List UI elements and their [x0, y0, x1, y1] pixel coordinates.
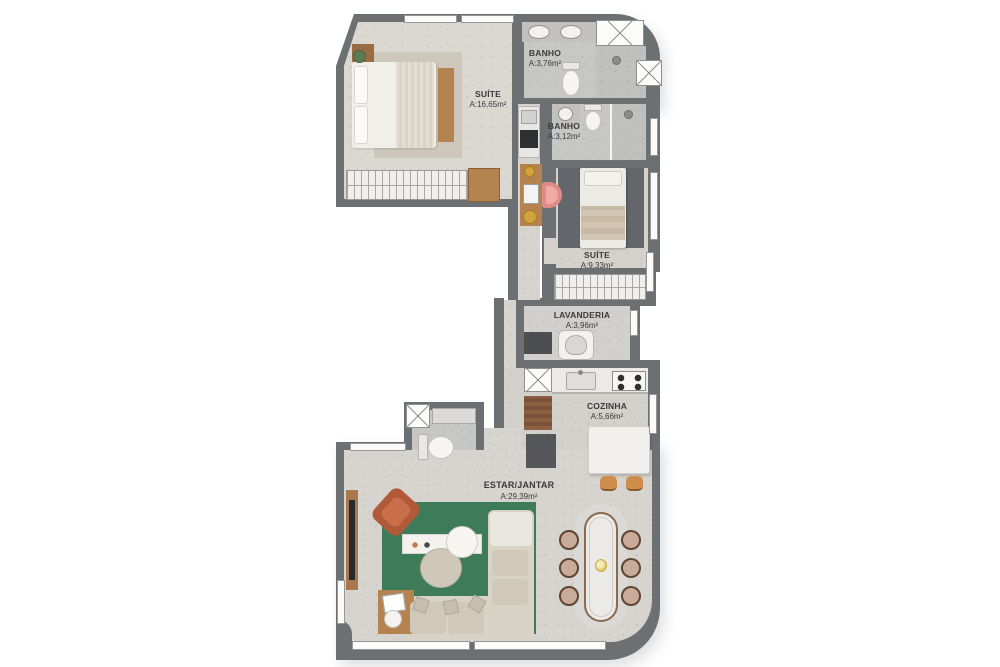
powder-toilet-tank — [418, 434, 428, 460]
wall-kitchen-north — [514, 360, 648, 368]
sofa-pillow-2 — [443, 599, 460, 616]
dining-chair-2 — [559, 558, 579, 578]
kitchen-stove — [612, 371, 646, 391]
dining-chair-5 — [621, 558, 641, 578]
kitchen-shaft — [524, 368, 552, 392]
side-table-lamp — [384, 610, 402, 628]
room-area: A:5,66m² — [569, 412, 645, 422]
floor-corridor-mouth — [484, 428, 520, 452]
kitchen-stool-right — [626, 476, 643, 491]
window-living-west — [337, 580, 345, 624]
floor-corridor-lower — [504, 300, 516, 368]
dining-centerpiece — [595, 559, 607, 572]
wall-corridor-upper — [508, 200, 518, 312]
hall-stool — [523, 210, 537, 224]
floorplan-canvas: BANHO A:3,76m² SUÍTE A:16,65m² BANHO A:3… — [0, 0, 1000, 667]
suite1-plant — [353, 50, 366, 63]
powder-vanity — [432, 408, 476, 424]
room-name: ESTAR/JANTAR — [476, 480, 562, 492]
bath1-sink-left — [528, 25, 550, 39]
room-label-lavanderia: LAVANDERIA A:3,96m² — [536, 310, 628, 331]
suite1-door-wood — [468, 168, 500, 202]
hall-laptop — [523, 184, 539, 204]
room-area: A:3,96m² — [536, 321, 628, 331]
laundry-cabinet-dark — [524, 332, 552, 354]
dining-chair-4 — [621, 530, 641, 550]
room-name: BANHO — [507, 48, 583, 59]
living-round-table — [446, 526, 478, 558]
suite2-blanket — [581, 206, 625, 240]
room-name: COZINHA — [569, 401, 645, 412]
room-label-suite1: SUÍTE A:16,65m² — [450, 89, 526, 110]
suite1-wardrobe — [346, 170, 468, 200]
suite1-pillow-bottom — [354, 106, 368, 144]
window-suite1-top-right — [461, 15, 514, 23]
suite2-pillow — [584, 171, 622, 186]
suite1-pillow-top — [354, 66, 368, 104]
bath2-shower-partition — [610, 104, 612, 160]
kitchen-island — [588, 426, 650, 474]
window-bath2-east — [650, 118, 658, 156]
window-kitchen-east — [649, 394, 657, 434]
dining-chair-1 — [559, 530, 579, 550]
window-laundry-east — [630, 310, 638, 336]
bath2-sink — [558, 107, 573, 121]
wall-corner-bulge — [336, 620, 352, 660]
bath1-sink-right — [560, 25, 582, 39]
room-label-banho1: BANHO A:3,76m² — [507, 48, 583, 69]
room-area: A:9,33m² — [559, 261, 635, 271]
room-area: A:3,76m² — [507, 59, 583, 69]
hall-desk-lamp — [524, 166, 535, 177]
window-living-south-left — [352, 641, 470, 650]
window-suite1-top-left — [404, 15, 457, 23]
kitchen-faucet — [578, 370, 583, 375]
window-suite2-east — [650, 172, 658, 240]
bath1-shower-glass — [596, 20, 644, 46]
sofa-cushion-2 — [492, 579, 528, 605]
kitchen-pantry-wood — [524, 396, 552, 430]
tv-screen — [349, 500, 355, 580]
sofa-cushion-1 — [492, 550, 528, 576]
room-label-banho2: BANHO A:3,12m² — [526, 121, 602, 142]
room-area: A:16,65m² — [450, 100, 526, 110]
window-living-south-right — [474, 641, 606, 650]
room-name: LAVANDERIA — [536, 310, 628, 321]
window-wardrobe2-east — [646, 252, 654, 292]
room-name: BANHO — [526, 121, 602, 132]
suite1-blanket — [396, 62, 434, 148]
bath1-toilet-bowl — [562, 70, 580, 96]
room-area: A:29,39m² — [476, 492, 562, 502]
kitchen-fridge — [526, 434, 556, 468]
bath1-shower-head — [612, 56, 621, 65]
powder-shaft — [406, 404, 430, 428]
dining-chair-6 — [621, 586, 641, 606]
room-label-estar-jantar: ESTAR/JANTAR A:29,39m² — [476, 480, 562, 502]
room-name: SUÍTE — [559, 250, 635, 261]
suite2-wardrobe — [554, 274, 646, 300]
powder-toilet-bowl — [428, 436, 454, 459]
laundry-tank-basin — [565, 335, 587, 355]
room-label-cozinha: COZINHA A:5,66m² — [569, 401, 645, 422]
sofa-chaise-cushion — [490, 512, 532, 546]
dining-chair-3 — [559, 586, 579, 606]
shaft-northeast — [636, 60, 662, 86]
bath2-shower-head — [624, 110, 633, 119]
suite2-door-gap — [544, 238, 556, 264]
bath2-toilet-tank — [584, 104, 602, 111]
room-label-suite2: SUÍTE A:9,33m² — [559, 250, 635, 271]
room-area: A:3,12m² — [526, 132, 602, 142]
room-name: SUÍTE — [450, 89, 526, 100]
kitchen-stool-left — [600, 476, 617, 491]
window-living-north — [350, 443, 406, 451]
